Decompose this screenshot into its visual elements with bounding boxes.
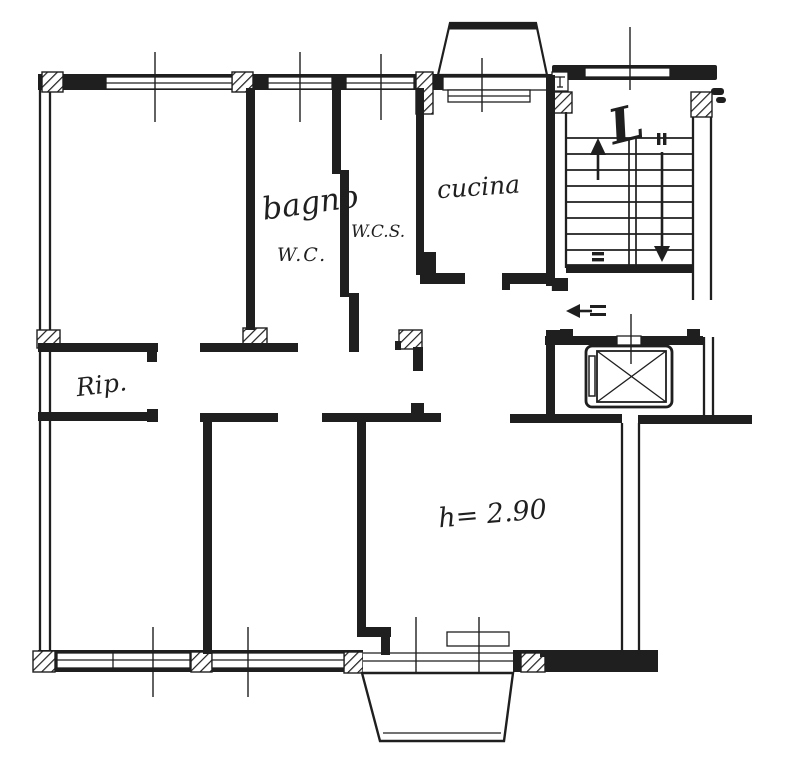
kitchen-balcony-door (443, 77, 547, 90)
room-label-wc: W.C. (277, 244, 327, 266)
bottom-windows (57, 632, 513, 674)
floor-plan-drawing: bagno W.C. W.C.S. cucina L Rip. h= 2.90 (0, 0, 792, 769)
floor-plan-page: bagno W.C. W.C.S. cucina L Rip. h= 2.90 (0, 0, 792, 769)
balcony-top (438, 23, 547, 75)
room-label-service-wc: W.C.S. (351, 222, 405, 242)
window-centerlines (153, 27, 630, 697)
stairwell-window (585, 68, 670, 77)
balcony-bottom (362, 673, 513, 741)
stair-down-arrow-icon (654, 133, 670, 262)
top-windows (106, 68, 670, 102)
elevator-x-icon (586, 346, 672, 407)
stair-up-arrow-icon (590, 138, 606, 261)
stair-landing-label: L (601, 94, 649, 157)
room-dividers (203, 418, 639, 657)
ceiling-height-annotation: h= 2.90 (437, 494, 548, 534)
entrance-arrow-icon (566, 304, 606, 318)
room-label-storage: Rip. (73, 367, 128, 402)
elevator (545, 314, 703, 407)
room-label-kitchen: cucina (436, 170, 521, 205)
